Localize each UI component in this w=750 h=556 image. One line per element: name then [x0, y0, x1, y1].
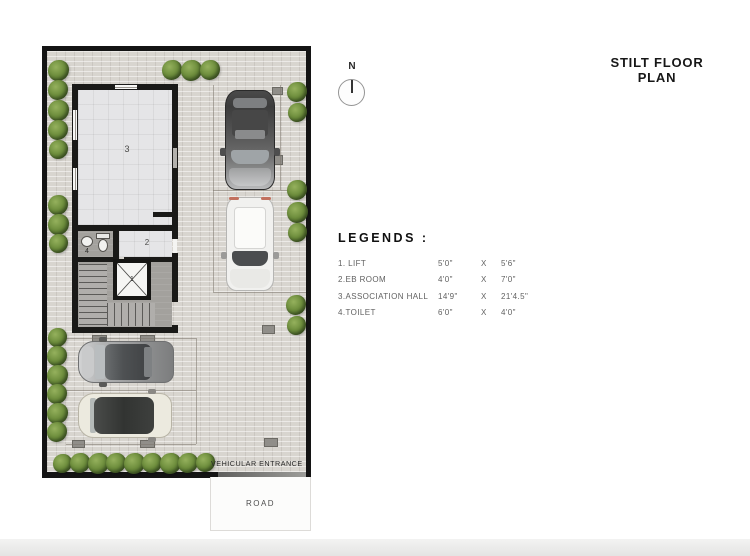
legend-heading: LEGENDS :	[338, 231, 573, 245]
bush-icon	[49, 234, 68, 253]
north-arrow-needle	[351, 80, 353, 93]
parking-line	[213, 292, 306, 293]
parked-car-cream-icon	[78, 393, 172, 438]
bush-icon	[53, 454, 72, 473]
north-arrow-label: N	[344, 61, 360, 72]
bush-icon	[48, 328, 67, 347]
legend-dim2: 5'6"	[501, 259, 561, 268]
legend-dim1: 4'0"	[438, 275, 481, 284]
parking-line	[66, 444, 196, 445]
parked-car-white-icon	[226, 197, 274, 291]
hall-jog-wall	[153, 212, 178, 217]
lift-shaft: 1	[113, 259, 151, 300]
bush-icon	[47, 403, 68, 424]
stilt-floor-plan-page: 1 3 2 4	[0, 0, 750, 556]
bush-icon	[287, 202, 308, 223]
legend-name: 4.TOILET	[338, 308, 438, 317]
parking-line	[196, 338, 197, 444]
block-south-wall	[72, 327, 178, 333]
block-north-wall	[72, 225, 178, 231]
room-number-toilet: 4	[82, 248, 92, 255]
legend-dim1: 6'0"	[438, 308, 481, 317]
block-east-wall	[172, 253, 178, 302]
legend-name: 2.EB ROOM	[338, 275, 438, 284]
page-bottom-band	[0, 539, 750, 556]
hall-window-icon	[73, 110, 77, 140]
drawing-title: STILT FLOOR PLAN	[592, 55, 722, 85]
block-west-wall	[72, 231, 78, 333]
bush-icon	[287, 316, 306, 335]
wc-bowl-icon	[98, 239, 108, 252]
legend-table: 1. LIFT5'0"X5'6"2.EB ROOM4'0"X7'0"3.ASSO…	[338, 255, 573, 321]
parking-line	[66, 338, 196, 339]
parked-car-silver-icon	[78, 341, 174, 383]
compound-wall-top	[42, 46, 311, 51]
bush-icon	[288, 103, 307, 122]
bush-icon	[49, 140, 68, 159]
toilet-partition-wall	[113, 228, 119, 260]
bush-icon	[181, 60, 202, 81]
legend-x: X	[481, 259, 501, 268]
block-east-wall	[172, 325, 178, 333]
vehicular-entrance-label: VEHICULAR ENTRANCE	[211, 459, 303, 468]
legend-dim1: 5'0"	[438, 259, 481, 268]
parking-line	[66, 390, 196, 391]
staircase-flight-lower	[107, 303, 155, 326]
bush-icon	[48, 60, 69, 81]
parked-car-dark-icon	[225, 90, 275, 190]
compound-wall-right	[306, 46, 311, 478]
staircase-flight-up	[79, 264, 107, 326]
hall-door-icon	[173, 148, 177, 168]
sink-icon	[81, 236, 93, 247]
hall-window-icon	[115, 85, 137, 89]
parking-line	[280, 85, 281, 190]
legend-dim2: 7'0"	[501, 275, 561, 284]
legend-dim1: 14'9"	[438, 292, 481, 301]
bush-icon	[48, 100, 69, 121]
road-area: ROAD	[210, 477, 311, 531]
column-marker	[262, 325, 275, 334]
bush-icon	[47, 365, 68, 386]
eb-room-door-icon	[173, 239, 177, 253]
legend-name: 3.ASSOCIATION HALL	[338, 292, 438, 301]
road-label: ROAD	[246, 499, 275, 508]
toilet-south-wall	[78, 257, 113, 262]
column-marker	[264, 438, 278, 447]
legend-name: 1. LIFT	[338, 259, 438, 268]
legend-dim2: 21'4.5"	[501, 292, 561, 301]
bush-icon	[48, 214, 69, 235]
hall-west-wall	[72, 84, 78, 231]
legend-x: X	[481, 275, 501, 284]
hall-floor	[78, 90, 172, 225]
legend-x: X	[481, 292, 501, 301]
hall-window-icon	[73, 168, 77, 190]
legend-dim2: 4'0"	[501, 308, 561, 317]
legend-panel: LEGENDS : 1. LIFT5'0"X5'6"2.EB ROOM4'0"X…	[338, 231, 573, 321]
parking-line	[213, 85, 214, 292]
room-number-eb-room: 2	[139, 238, 155, 247]
bush-icon	[288, 223, 307, 242]
room-number-hall: 3	[119, 144, 135, 154]
legend-x: X	[481, 308, 501, 317]
room-number-lift: 1	[117, 276, 147, 283]
